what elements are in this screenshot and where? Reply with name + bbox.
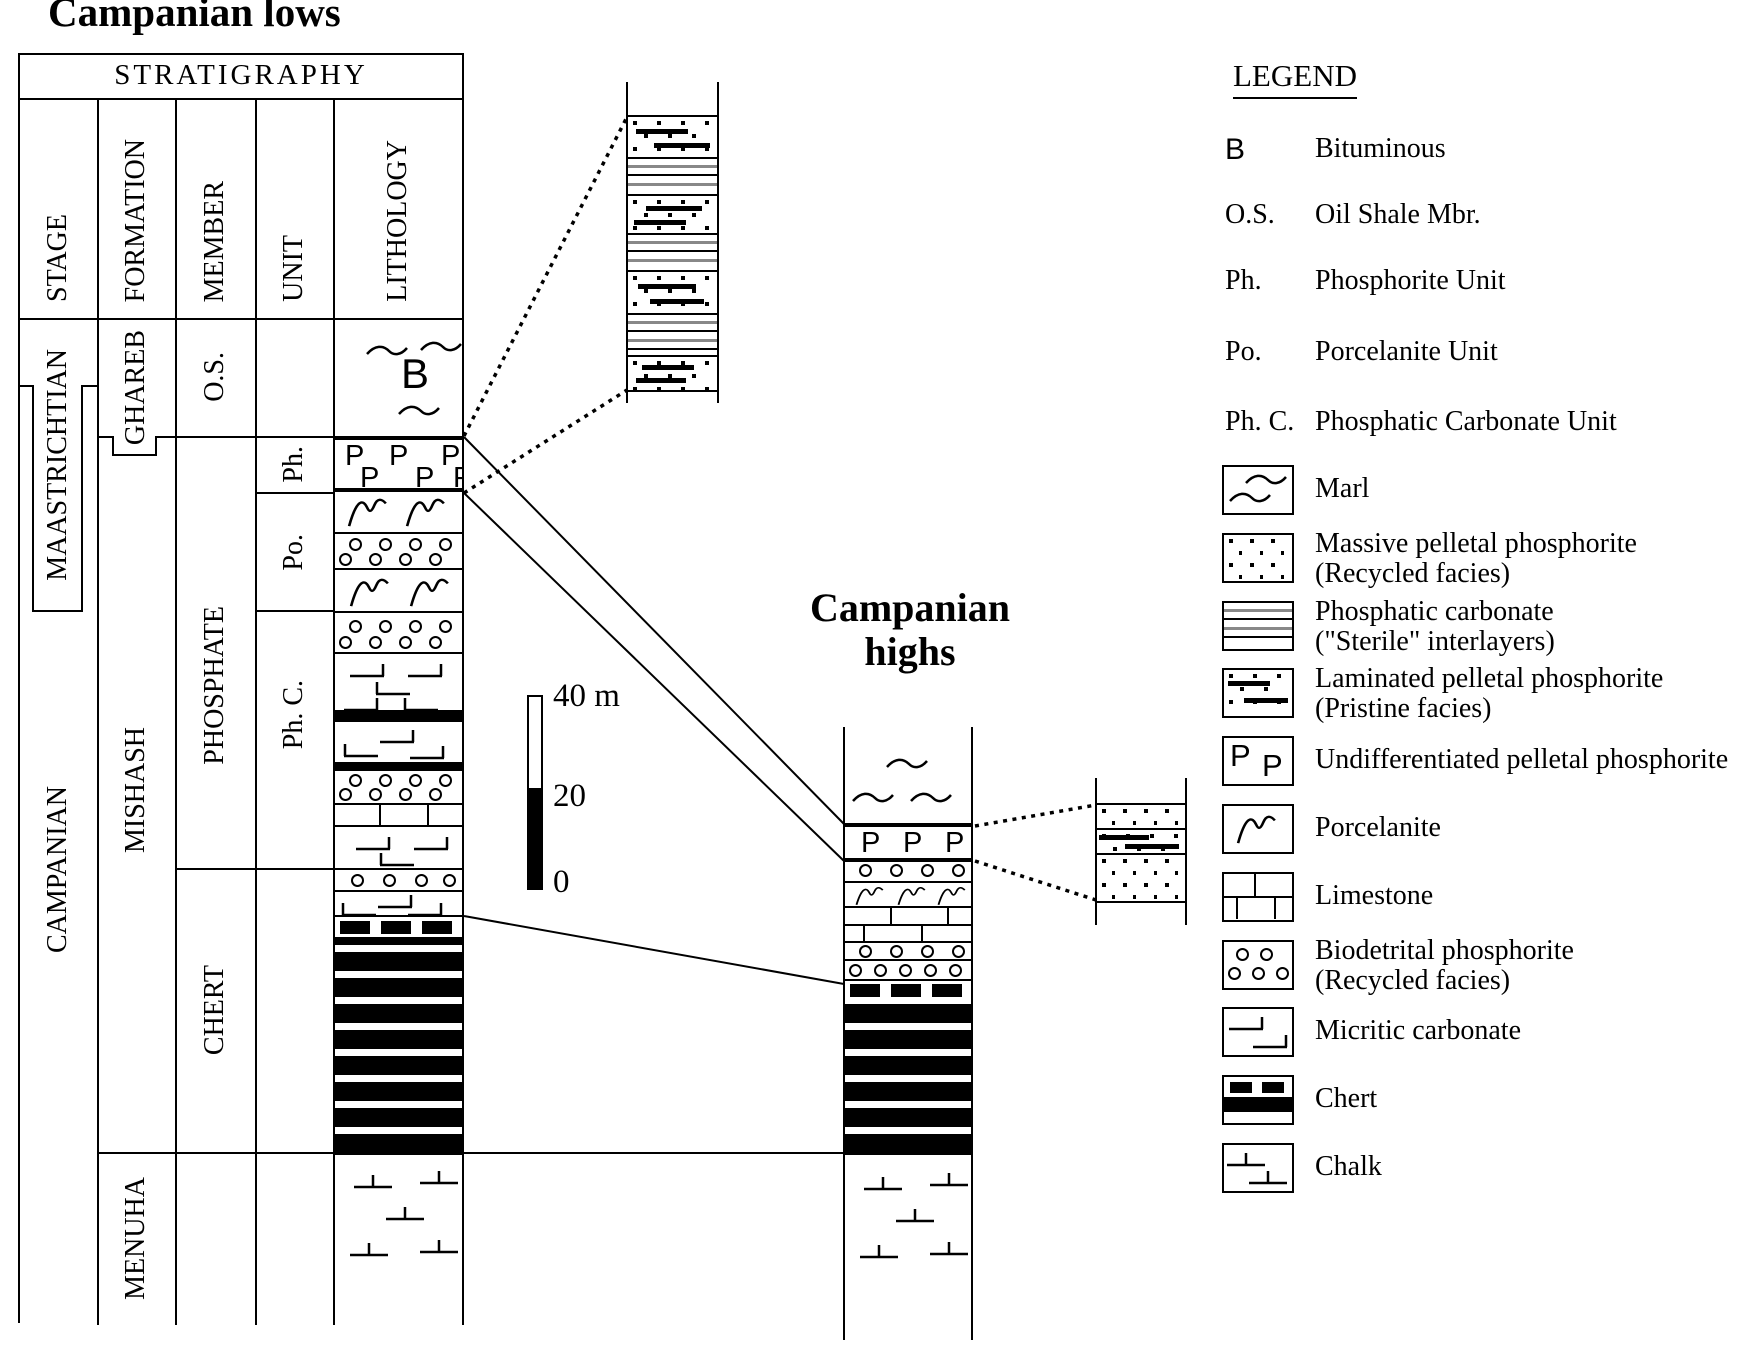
- table-line: [18, 385, 32, 387]
- detail-connector-left-lower: [464, 390, 627, 493]
- phosphorite-dot: [1271, 539, 1275, 543]
- sterile-line: [1224, 636, 1292, 638]
- phosphorite-dot: [1250, 563, 1254, 567]
- legend-abbr-label: Oil Shale Mbr.: [1315, 199, 1481, 231]
- legend-abbr-key: Ph.: [1225, 265, 1262, 297]
- correlation-line-chert-top: [464, 916, 844, 984]
- legend-pattern-label: Marl: [1315, 474, 1369, 504]
- detail-connector-left-upper: [464, 117, 627, 436]
- table-line: [18, 53, 20, 1323]
- biodetrital-circle: [1236, 948, 1249, 961]
- biodetrital-circle: [1228, 967, 1241, 980]
- phosphorite-dot: [1239, 575, 1243, 579]
- legend-swatch-chert: [1222, 1075, 1294, 1125]
- table-line: [97, 1152, 845, 1154]
- litho-band-pband: PP: [1224, 738, 1292, 783]
- legend-label-line1: Undifferentiated pelletal phosphorite: [1315, 745, 1728, 775]
- legend-label-line2: ("Sterile" interlayers): [1315, 627, 1555, 657]
- legend-label-line1: Laminated pelletal phosphorite: [1315, 664, 1663, 694]
- chert-band: [1224, 1097, 1292, 1112]
- phosphorite-dot: [1229, 539, 1233, 543]
- table-line: [255, 492, 335, 494]
- legend-label-line1: Biodetrital phosphorite: [1315, 936, 1574, 966]
- sterile-line: [1224, 618, 1292, 620]
- legend-swatch-marl: [1222, 465, 1294, 515]
- legend-swatch-micritic: [1222, 1007, 1294, 1057]
- table-line: [1185, 778, 1187, 925]
- table-line: [18, 98, 464, 100]
- legend-abbr-key: Po.: [1225, 336, 1262, 368]
- legend-pattern-label: Porcelanite: [1315, 813, 1441, 843]
- limestone-joint: [1254, 874, 1256, 897]
- scale-label-middle: 20: [553, 778, 586, 815]
- phosphorite-dot: [1229, 563, 1233, 567]
- legend-swatch-laminated: [1222, 668, 1294, 718]
- legend-pattern-label: Chalk: [1315, 1152, 1382, 1182]
- phosphorite-dot: [1229, 700, 1233, 704]
- litho-band-laminated: [1224, 670, 1292, 715]
- table-line: [971, 727, 973, 1340]
- litho-band-micritic: [1224, 1009, 1292, 1054]
- legend-pattern-label: Laminated pelletal phosphorite(Pristine …: [1315, 664, 1663, 724]
- legend-label-line1: Massive pelletal phosphorite: [1315, 529, 1637, 559]
- porcelanite-symbol: [1236, 811, 1278, 845]
- chalk-symbol: [1248, 1169, 1288, 1185]
- biodetrital-circle: [1260, 948, 1273, 961]
- table-line: [81, 385, 97, 387]
- scale-bar-lower: [527, 790, 543, 890]
- legend-label-line1: Micritic carbonate: [1315, 1016, 1521, 1046]
- table-line: [32, 610, 83, 612]
- legend-label-line2: (Recycled facies): [1315, 966, 1574, 996]
- legend-label-line1: Chert: [1315, 1084, 1377, 1114]
- legend-label-line1: Porcelanite: [1315, 813, 1441, 843]
- table-line: [843, 727, 845, 1340]
- limestone-joint: [1274, 897, 1276, 920]
- marl-squiggle: [1228, 491, 1272, 505]
- chert-nodule: [1262, 1082, 1284, 1093]
- table-line: [255, 98, 257, 1325]
- legend-pattern-label: Biodetrital phosphorite(Recycled facies): [1315, 936, 1574, 996]
- phosphorite-letter: P: [1230, 740, 1251, 771]
- table-line: [626, 82, 628, 403]
- legend-label-line2: (Recycled facies): [1315, 559, 1637, 589]
- legend-pattern-label: Undifferentiated pelletal phosphorite: [1315, 745, 1728, 775]
- phosphorite-dot: [1264, 687, 1268, 691]
- litho-band-sterile: [1224, 603, 1292, 648]
- limestone-bed-line: [1224, 896, 1292, 898]
- phosphorite-lamina: [1228, 681, 1270, 686]
- table-line: [462, 53, 464, 1325]
- chert-nodule: [1230, 1082, 1252, 1093]
- litho-band-circles: [1224, 942, 1292, 987]
- litho-band-chertswatch: [1224, 1077, 1292, 1122]
- chalk-symbol: [1226, 1151, 1266, 1167]
- table-line: [175, 98, 177, 1325]
- legend-label-line1: Chalk: [1315, 1152, 1382, 1182]
- phosphorite-dot: [1260, 575, 1264, 579]
- legend-swatch-chalk: [1222, 1143, 1294, 1193]
- marl-squiggle: [1244, 473, 1288, 487]
- biodetrital-circle: [1252, 967, 1265, 980]
- correlation-line-phosphorite-top: [464, 437, 844, 824]
- correlation-line-phosphorite-base: [464, 493, 844, 861]
- scale-label-top: 40 m: [553, 678, 620, 715]
- phosphorite-dot: [1240, 687, 1244, 691]
- legend-abbr-label: Porcelanite Unit: [1315, 336, 1498, 368]
- limestone-joint: [1236, 897, 1238, 920]
- legend-swatch-pband: PP: [1222, 736, 1294, 786]
- detail-connector-right-lower: [975, 861, 1096, 900]
- legend-pattern-label: Phosphatic carbonate("Sterile" interlaye…: [1315, 597, 1555, 657]
- legend-pattern-label: Micritic carbonate: [1315, 1016, 1521, 1046]
- legend-swatch-biodetrital: [1222, 940, 1294, 990]
- table-line: [175, 868, 335, 870]
- phosphorite-dot: [1239, 551, 1243, 555]
- table-line: [18, 318, 464, 320]
- table-line: [255, 610, 335, 612]
- legend-pattern-label: Limestone: [1315, 881, 1433, 911]
- sterile-line: [1224, 627, 1292, 630]
- table-line: [112, 454, 157, 456]
- litho-band-chalk: [1224, 1145, 1292, 1190]
- legend-swatch-porc: [1222, 804, 1294, 854]
- phosphorite-dot: [1229, 674, 1233, 678]
- legend-label-line1: Limestone: [1315, 881, 1433, 911]
- phosphorite-dot: [1250, 539, 1254, 543]
- table-line: [333, 98, 335, 1325]
- phosphorite-lamina: [1244, 698, 1288, 703]
- legend-label-line1: Phosphatic carbonate: [1315, 597, 1555, 627]
- litho-band-massive: [1224, 535, 1292, 580]
- legend-abbr-label: Phosphatic Carbonate Unit: [1315, 406, 1617, 438]
- litho-band-porc: [1224, 806, 1292, 851]
- litho-band-marl: [1224, 467, 1292, 512]
- legend-swatch-sterile: [1222, 601, 1294, 651]
- legend-pattern-label: Massive pelletal phosphorite(Recycled fa…: [1315, 529, 1637, 589]
- micritic-symbol: [1228, 1015, 1264, 1031]
- legend-label-line2: (Pristine facies): [1315, 694, 1663, 724]
- table-line: [717, 82, 719, 403]
- table-line: [112, 436, 114, 456]
- phosphorite-dot: [1271, 563, 1275, 567]
- biodetrital-circle: [1276, 967, 1289, 980]
- phosphorite-dot: [1281, 551, 1285, 555]
- scale-bar-upper: [527, 695, 543, 790]
- sterile-line: [1224, 609, 1292, 612]
- phosphorite-dot: [1277, 674, 1281, 678]
- legend-pattern-label: Chert: [1315, 1084, 1377, 1114]
- legend-abbr-key: O.S.: [1225, 199, 1275, 231]
- legend-swatch-limestone: [1222, 872, 1294, 922]
- micritic-symbol: [1252, 1033, 1288, 1049]
- legend-abbr-label: Bituminous: [1315, 133, 1446, 165]
- legend-label-line1: Marl: [1315, 474, 1369, 504]
- detail-connector-right-upper: [975, 805, 1096, 826]
- legend-abbr-label: Phosphorite Unit: [1315, 265, 1506, 297]
- phosphorite-dot: [1260, 551, 1264, 555]
- table-line: [18, 53, 464, 55]
- scale-label-bottom: 0: [553, 864, 570, 901]
- legend-abbr-key: B: [1225, 133, 1245, 167]
- table-line: [81, 385, 83, 612]
- table-line: [155, 436, 157, 456]
- table-line: [32, 385, 34, 612]
- legend-swatch-massive: [1222, 533, 1294, 583]
- phosphorite-dot: [1281, 575, 1285, 579]
- table-line: [1095, 778, 1097, 925]
- legend-heading-text: LEGEND: [1233, 58, 1357, 99]
- litho-band-limestone: [1224, 874, 1292, 919]
- phosphorite-letter: P: [1262, 750, 1283, 781]
- legend-heading: LEGEND: [1233, 58, 1357, 99]
- phosphorite-dot: [1253, 674, 1257, 678]
- legend-abbr-key: Ph. C.: [1225, 406, 1294, 438]
- table-line: [97, 98, 99, 1325]
- table-line: [155, 436, 335, 438]
- stratigraphy-figure: Campanian lows Campanian highs STRATIGRA…: [0, 0, 1756, 1348]
